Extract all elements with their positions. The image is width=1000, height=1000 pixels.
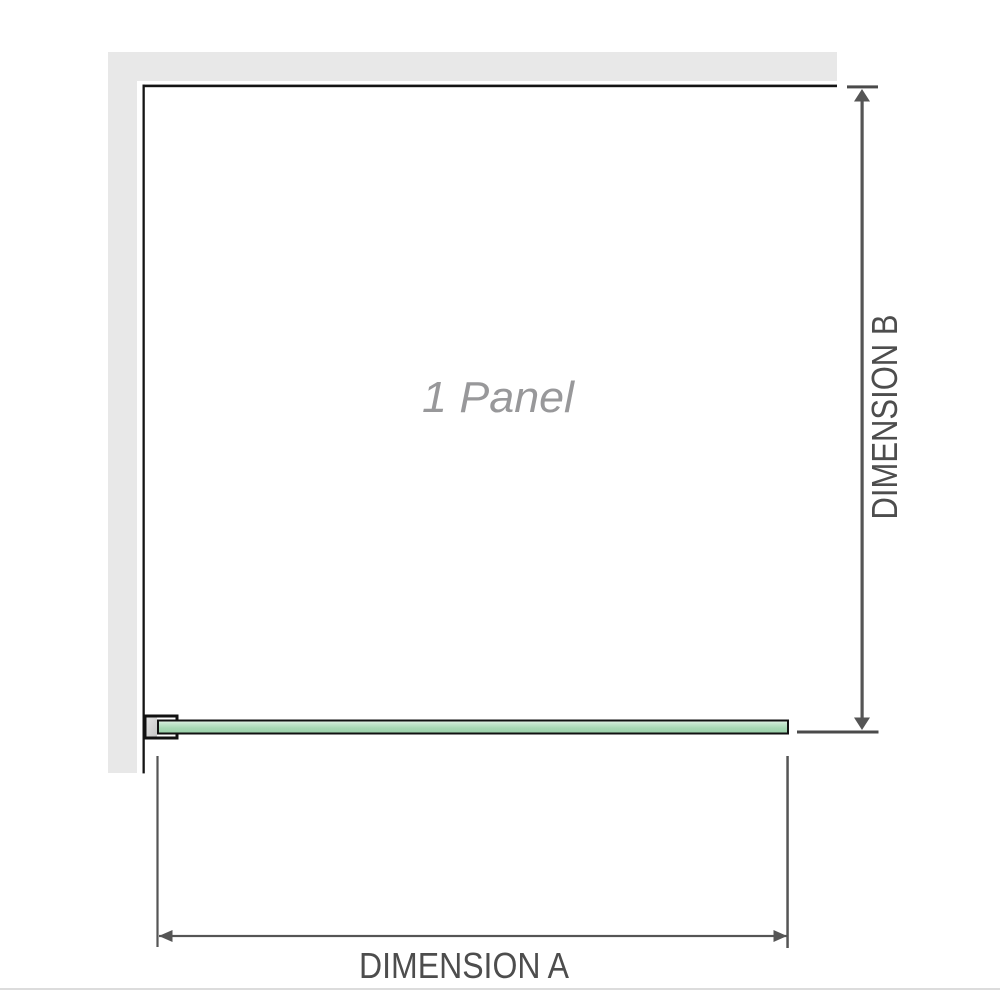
svg-text:DIMENSION A: DIMENSION A — [359, 945, 569, 986]
svg-text:1 Panel: 1 Panel — [422, 373, 575, 422]
svg-text:DIMENSION B: DIMENSION B — [864, 315, 905, 520]
